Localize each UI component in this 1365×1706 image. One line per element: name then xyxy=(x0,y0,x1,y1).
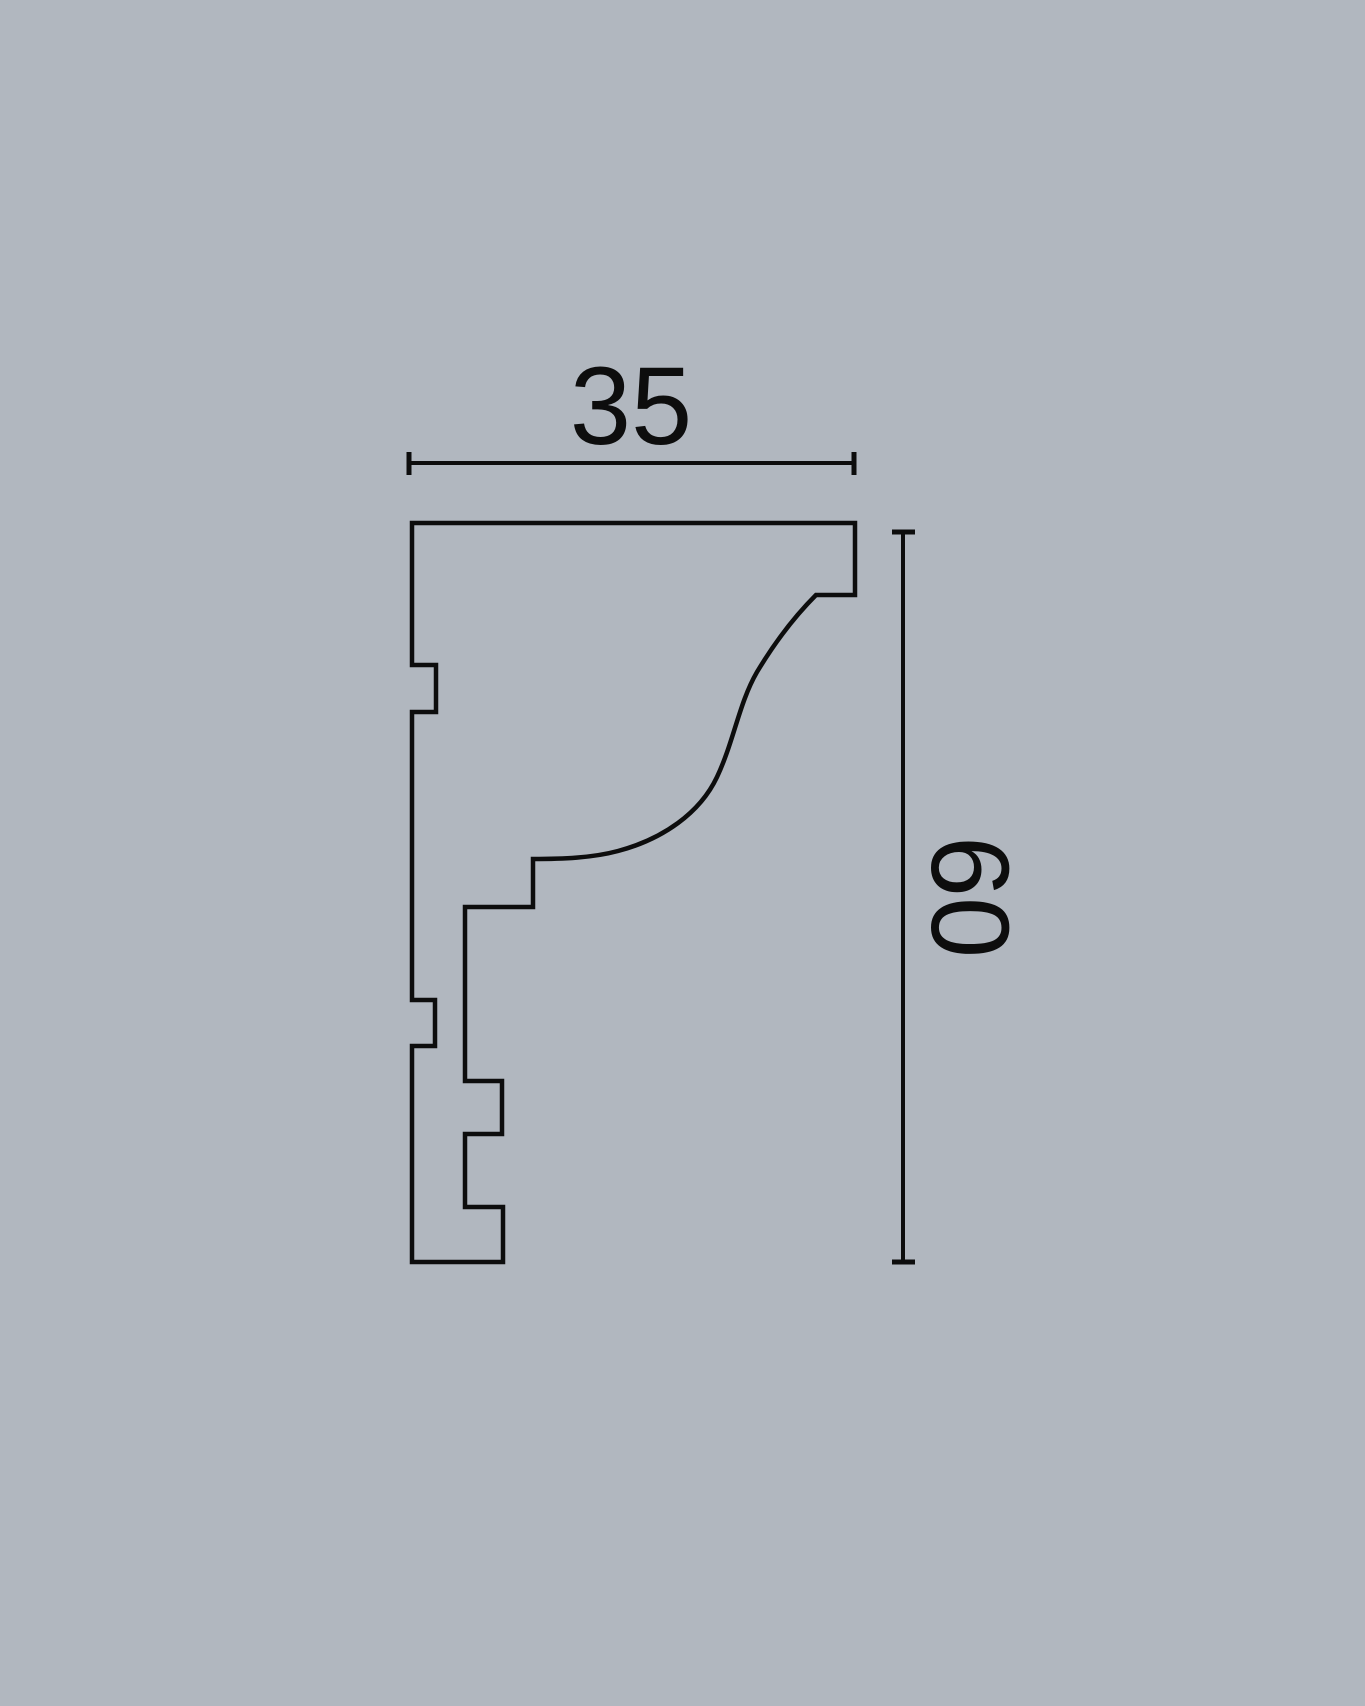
height-dimension-label: 60 xyxy=(908,836,1031,958)
height-dimension: 60 xyxy=(892,532,1031,1262)
page-background: 35 60 xyxy=(0,0,1365,1706)
width-dimension-label: 35 xyxy=(570,345,692,468)
width-dimension: 35 xyxy=(409,345,854,475)
molding-profile-outline xyxy=(412,523,855,1262)
technical-drawing: 35 60 xyxy=(0,0,1365,1706)
